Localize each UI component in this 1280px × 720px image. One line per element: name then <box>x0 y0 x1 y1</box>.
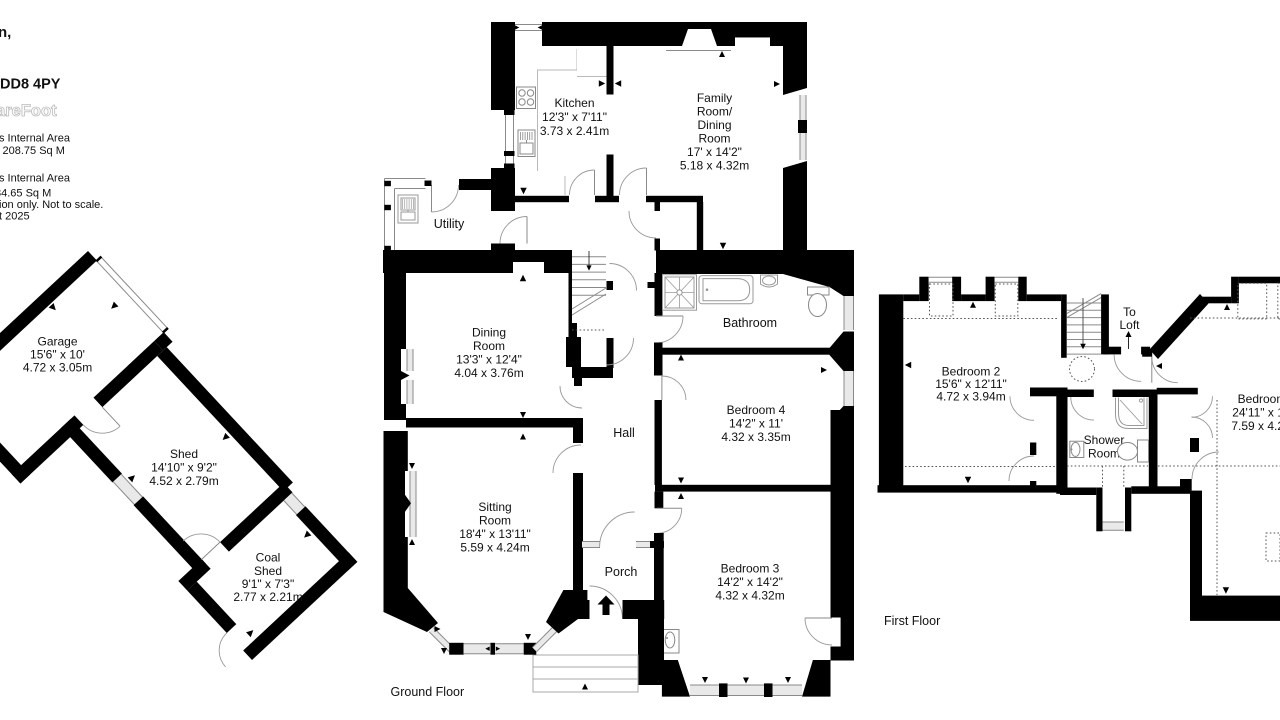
svg-text:Family: Family <box>697 91 732 105</box>
svg-text:24'11" x 14'2": 24'11" x 14'2" <box>1232 406 1280 420</box>
svg-text:n,: n, <box>0 24 11 41</box>
svg-text:12'3" x 7'11": 12'3" x 7'11" <box>542 110 607 124</box>
svg-text:First Floor: First Floor <box>884 614 940 628</box>
svg-text:Hall: Hall <box>613 426 635 440</box>
svg-text:s Internal Area: s Internal Area <box>0 173 71 185</box>
svg-text:To: To <box>1123 305 1136 319</box>
svg-text:uareFoot: uareFoot <box>0 102 57 120</box>
svg-text:Shed: Shed <box>170 447 198 461</box>
svg-text:13'3" x 12'4": 13'3" x 12'4" <box>456 353 522 367</box>
svg-text:Dining: Dining <box>697 118 731 132</box>
svg-text:14'2" x 14'2": 14'2" x 14'2" <box>717 575 783 589</box>
svg-text:Shed: Shed <box>254 564 282 578</box>
svg-text:Dining: Dining <box>472 326 506 340</box>
svg-text:Bedroom: Bedroom <box>1238 392 1280 406</box>
svg-text:Room: Room <box>698 132 730 146</box>
svg-text:3.73 x 2.41m: 3.73 x 2.41m <box>540 124 609 138</box>
svg-text:Garage: Garage <box>37 335 77 349</box>
svg-text:Room/: Room/ <box>697 105 733 119</box>
svg-text:5.59 x 4.24m: 5.59 x 4.24m <box>460 541 529 555</box>
svg-text:ion only. Not to scale.: ion only. Not to scale. <box>0 199 103 211</box>
svg-text:Kitchen: Kitchen <box>554 96 594 110</box>
svg-text:s Internal Area: s Internal Area <box>0 133 71 145</box>
svg-text:4.72 x 3.05m: 4.72 x 3.05m <box>23 361 92 375</box>
svg-text:17' x 14'2": 17' x 14'2" <box>687 145 742 159</box>
svg-text:Bedroom 4: Bedroom 4 <box>727 403 786 417</box>
svg-text:208.75 Sq M: 208.75 Sq M <box>3 145 65 157</box>
svg-text:2.77 x 2.21m: 2.77 x 2.21m <box>233 590 302 604</box>
svg-text:4.04 x 3.76m: 4.04 x 3.76m <box>454 366 523 380</box>
svg-text:4.52 x 2.79m: 4.52 x 2.79m <box>149 474 218 488</box>
svg-text:Loft: Loft <box>1119 318 1140 332</box>
svg-text:5.18 x 4.32m: 5.18 x 4.32m <box>680 159 749 173</box>
svg-text:4.32 x 4.32m: 4.32 x 4.32m <box>715 589 784 603</box>
svg-text:Sitting: Sitting <box>478 500 511 514</box>
svg-text:DD8 4PY: DD8 4PY <box>0 77 61 93</box>
svg-text:15'6" x 10': 15'6" x 10' <box>30 348 85 362</box>
svg-text:14'2" x 11': 14'2" x 11' <box>729 417 783 431</box>
svg-text:Bedroom 3: Bedroom 3 <box>721 562 780 576</box>
svg-text:4.32 x 3.35m: 4.32 x 3.35m <box>721 430 790 444</box>
svg-text:Room: Room <box>473 339 505 353</box>
svg-text:4.72 x 3.94m: 4.72 x 3.94m <box>936 390 1005 404</box>
svg-text:Shower: Shower <box>1084 433 1125 447</box>
svg-text:34.65 Sq M: 34.65 Sq M <box>0 188 51 200</box>
svg-text:Porch: Porch <box>605 565 638 579</box>
svg-text:18'4" x 13'11": 18'4" x 13'11" <box>459 527 531 541</box>
svg-text:Room: Room <box>479 514 511 528</box>
svg-text:Coal: Coal <box>256 551 281 565</box>
svg-text:Ground Floor: Ground Floor <box>391 685 465 699</box>
svg-text:14'10" x 9'2": 14'10" x 9'2" <box>151 461 217 475</box>
svg-text:9'1" x 7'3": 9'1" x 7'3" <box>242 577 294 591</box>
svg-text:t 2025: t 2025 <box>0 211 30 223</box>
svg-text:Utility: Utility <box>434 217 465 231</box>
svg-text:7.59 x 4.27m: 7.59 x 4.27m <box>1231 419 1280 433</box>
svg-text:Room: Room <box>1088 447 1120 461</box>
svg-text:Bathroom: Bathroom <box>723 316 777 330</box>
